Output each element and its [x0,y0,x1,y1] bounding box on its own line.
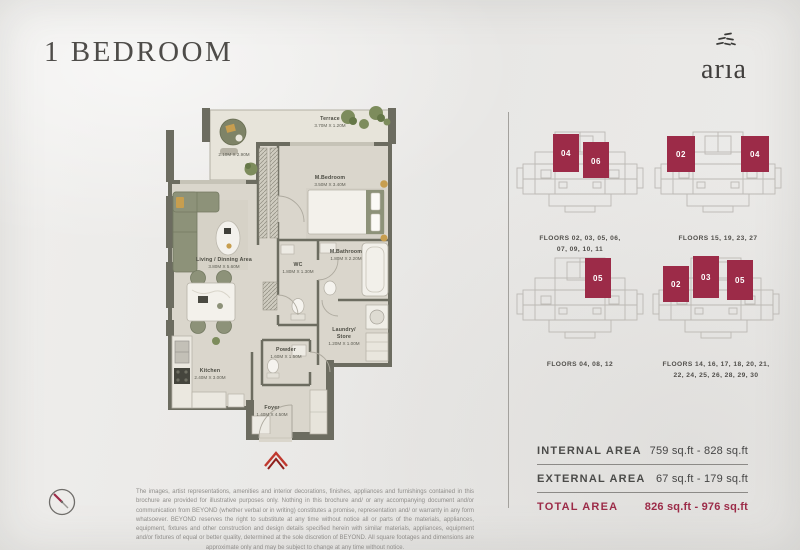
key-plan-floors-label: FLOORS 15, 19, 23, 27 [650,233,786,244]
room-dims-bedroom: 3.50M X 3.40M [314,182,345,187]
area-label: INTERNAL AREA [537,445,642,457]
section-divider [508,112,509,508]
room-dims-balcony: 2.10M X 2.90M [218,152,249,157]
area-label: EXTERNAL AREA [537,473,646,485]
room-dims-foyer: 1.40M X 4.50M [256,412,287,417]
building-diagram-icon: 02 03 05 [651,250,781,342]
laundry-fixtures [366,305,388,361]
room-label-bathroom: M.Bathroom [330,249,362,255]
room-dims-powder: 1.60M X 1.50M [270,354,301,359]
area-value: 759 sq.ft - 828 sq.ft [650,445,748,457]
brochure-page: 1 BEDROOM arıa [0,0,800,550]
key-plan-floors-label: FLOORS 14, 16, 17, 18, 20, 21, 22, 24, 2… [640,359,792,381]
area-value: 67 sq.ft - 179 sq.ft [656,473,748,485]
page-title: 1 BEDROOM [44,36,233,69]
room-label-terrace: Terrace [320,116,340,122]
area-label: TOTAL AREA [537,501,618,513]
room-label-laundry-2: Store [337,334,351,340]
area-value: 826 sq.ft - 976 sq.ft [645,501,748,513]
floor-plan: Terrace 3.70M X 1.20M 2.10M X 2.90M M.Be… [140,100,400,470]
area-row-external: EXTERNAL AREA 67 sq.ft - 179 sq.ft [537,465,748,493]
building-diagram-icon: 04 06 [515,124,645,216]
area-table: INTERNAL AREA 759 sq.ft - 828 sq.ft EXTE… [537,437,748,520]
room-label-foyer: Foyer [264,405,279,411]
unit-number: 02 [676,150,686,159]
room-label-laundry: Laundry/ [332,327,356,333]
area-row-internal: INTERNAL AREA 759 sq.ft - 828 sq.ft [537,437,748,465]
unit-number: 05 [593,274,603,283]
compass-icon [46,486,78,518]
key-plan-4: 02 03 05 FLOORS 14, 16, 17, 18, 20, 21, … [640,250,792,381]
disclaimer-text: The images, artist representations, amen… [136,488,474,550]
room-label-wc: WC [293,262,302,268]
room-label-bedroom: M.Bedroom [315,175,346,181]
room-dims-laundry: 1.20M X 1.00M [328,341,359,346]
wardrobe [259,148,267,238]
unit-number: 04 [561,149,571,158]
wardrobe [270,148,278,238]
unit-number: 06 [591,157,601,166]
room-dims-terrace: 3.70M X 1.20M [314,123,345,128]
room-label-kitchen: Kitchen [200,368,220,374]
key-plan-3: 05 FLOORS 04, 08, 12 [512,250,648,370]
brand-logo: arıa [672,32,776,84]
room-dims-living: 3.80M X 5.60M [208,264,239,269]
building-diagram-icon: 02 04 [653,124,783,216]
unit-number: 05 [735,276,745,285]
room-label-living: Living / Dinning Area [196,257,252,263]
unit-number: 02 [671,280,681,289]
area-row-total: TOTAL AREA 826 sq.ft - 976 sq.ft [537,493,748,520]
coffee-table [216,221,240,255]
room-dims-kitchen: 2.40M X 3.00M [194,375,225,380]
room-label-powder: Powder [276,347,296,353]
room-dims-bathroom: 1.80M X 2.20M [330,256,361,261]
entry-arrow-icon [265,453,287,469]
key-plan-floors-label: FLOORS 04, 08, 12 [512,359,648,370]
key-plan-2: 02 04 FLOORS 15, 19, 23, 27 [650,124,786,244]
key-plan-1: 04 06 FLOORS 02, 03, 05, 06, 07, 09, 10,… [512,124,648,255]
room-dims-wc: 1.80M X 1.30M [282,269,313,274]
unit-number: 04 [750,150,760,159]
brand-glyph-icon [711,32,737,50]
brand-wordmark: arıa [672,56,776,84]
linen-closet [263,282,277,310]
unit-number: 03 [701,273,711,282]
building-diagram-icon: 05 [515,250,645,342]
